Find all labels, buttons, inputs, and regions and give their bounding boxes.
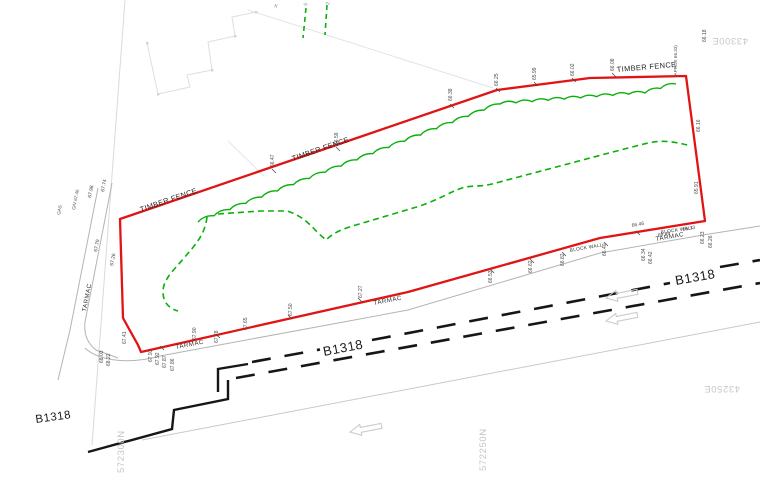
site-plan-svg: TIMBER FENCE TIMBER FENCE TIMBER FENCE T…: [0, 0, 760, 500]
lane-line-upper-a: [252, 350, 320, 363]
building-vertex-dot: [146, 42, 148, 44]
marking-step-lower: [88, 380, 228, 452]
spot-level: 67.79: [93, 239, 101, 253]
partial-label-1: 5: [303, 2, 309, 6]
building-vertex-dot: [157, 93, 159, 95]
spot-level: 66.23: [700, 231, 706, 244]
spot-level: 66.02: [570, 63, 576, 76]
spot-level: 66.16: [696, 119, 702, 132]
main-road-kerb-south: [142, 322, 760, 440]
spot-level: 67.74: [100, 179, 108, 193]
spot-level: 65.91: [694, 181, 700, 194]
tarmac-label-side-road: TARMAC: [81, 283, 93, 313]
timber-fence-label-1: TIMBER FENCE: [139, 186, 198, 214]
block-wall-label-1: BLOCK WALL: [569, 242, 603, 254]
gas-label: GAS: [56, 205, 63, 215]
spot-level: 67.27: [358, 285, 364, 298]
survey-drawing-canvas: TIMBER FENCE TIMBER FENCE TIMBER FENCE T…: [0, 0, 760, 500]
hedge-inner-long: [218, 141, 691, 240]
spot-level: 66.34: [641, 248, 647, 261]
road-name-label-west: B1318: [35, 409, 72, 426]
road-name-label-east: B1318: [674, 266, 717, 288]
partial-top-labels: K 5 2: [273, 1, 331, 10]
timber-fence-label-3: TIMBER FENCE: [616, 60, 676, 74]
spot-level: 65.99: [532, 67, 538, 80]
spot-level: 67.93: [148, 349, 154, 362]
tarmac-label-2: TARMAC: [373, 295, 403, 307]
partial-label-2: 2: [325, 1, 331, 5]
grid-easting-2: 43250E: [704, 383, 740, 394]
grid-easting-1: 43300E: [712, 35, 748, 46]
background-features: [92, 0, 493, 445]
spot-level: 66.18: [702, 29, 708, 42]
spot-level: 67.86: [170, 358, 176, 371]
main-road-kerb-north: [85, 226, 760, 361]
hedge-top-partial-2: [325, 5, 327, 35]
spot-level: 66.26: [708, 235, 714, 248]
timber-fence-label-2: TIMBER FENCE: [291, 135, 350, 163]
spot-level: 68.22: [106, 353, 112, 366]
road-markings: [88, 260, 760, 452]
road-arrow-icon: [349, 286, 639, 437]
spot-level: 66.42: [648, 251, 654, 264]
spot-level: 68.03: [99, 350, 105, 363]
spot-level: 67.41: [122, 331, 128, 344]
spot-level: 66.47: [270, 154, 276, 167]
survey-ticks: [160, 73, 640, 350]
partial-label-k: K: [273, 3, 279, 10]
spot-level: 67.50: [288, 303, 294, 316]
lane-line-upper-c: [720, 260, 760, 267]
lane-line-lower: [236, 283, 760, 378]
spot-level: 66.53: [488, 270, 494, 283]
spot-level: 67.98: [87, 185, 95, 199]
building-outline: [147, 12, 256, 94]
spot-level: 66.38: [448, 88, 454, 101]
spot-level: 66.40: [602, 243, 608, 256]
marking-step-upper: [218, 364, 248, 392]
approx-note-label: (APROX 66.33): [673, 45, 678, 77]
spot-level: 66.62: [528, 260, 534, 273]
spot-level: 66.46: [631, 221, 645, 229]
spot-level: 66.25: [494, 73, 500, 86]
road-edges: [58, 183, 760, 440]
spot-level: 67.65: [243, 317, 249, 330]
hedge-loop-west: [163, 217, 207, 311]
spot-level: 67.26: [109, 253, 117, 267]
spot-level: 66.33: [682, 225, 696, 233]
neighbour-boundary-line: [248, 10, 493, 88]
grid-northing-2: 572250N: [478, 428, 489, 471]
building-vertex-dot: [211, 69, 213, 71]
grid-northing-1: 572300N: [116, 430, 127, 473]
road-name-label-centre: B1318: [322, 336, 365, 358]
spot-level: 66.08: [610, 58, 616, 71]
hedge-lines: [163, 5, 691, 311]
gas-valve-label: G/V 67.46: [71, 188, 80, 210]
hedge-top-partial-1: [303, 8, 306, 38]
spot-level: 66.59: [334, 132, 340, 145]
hedge-top-scalloped: [198, 84, 676, 222]
building-vertex-dot: [255, 11, 257, 13]
tarmac-label-1: TARMAC: [175, 339, 205, 351]
site-boundary: [120, 76, 705, 352]
spot-level: 67.87: [162, 355, 168, 368]
building-vertex-dot: [234, 35, 236, 37]
spot-level: 67.90: [192, 327, 198, 340]
spot-level: 67.78: [214, 330, 220, 343]
side-road-edge-east: [85, 183, 118, 358]
spot-level: 67.92: [155, 352, 161, 365]
spot-level: 66.82: [560, 253, 566, 266]
